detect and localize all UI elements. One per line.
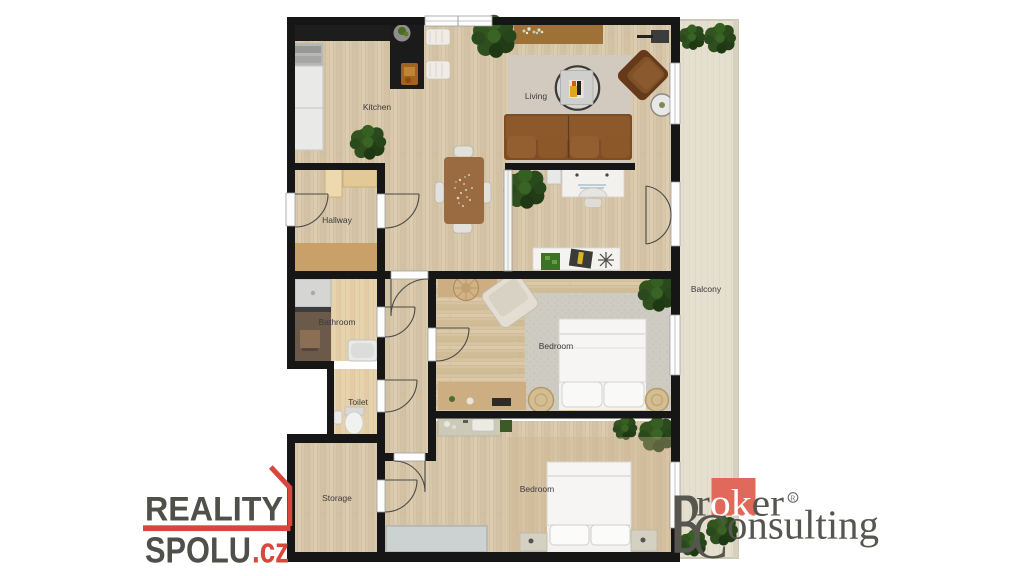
svg-text:Hallway: Hallway	[322, 215, 353, 225]
svg-text:SPOLU: SPOLU	[145, 530, 251, 571]
svg-text:Balcony: Balcony	[691, 284, 722, 294]
svg-text:Toilet: Toilet	[348, 397, 368, 407]
svg-text:Bedroom: Bedroom	[539, 341, 574, 351]
svg-text:Living: Living	[525, 91, 547, 101]
svg-text:C: C	[692, 501, 728, 573]
svg-text:Storage: Storage	[322, 493, 352, 503]
svg-text:Kitchen: Kitchen	[363, 102, 392, 112]
svg-text:Bedroom: Bedroom	[520, 484, 555, 494]
svg-text:REALITY: REALITY	[145, 490, 283, 528]
svg-text:.cz: .cz	[252, 530, 289, 571]
svg-text:onsulting: onsulting	[727, 502, 879, 548]
svg-text:Bathroom: Bathroom	[319, 317, 356, 327]
